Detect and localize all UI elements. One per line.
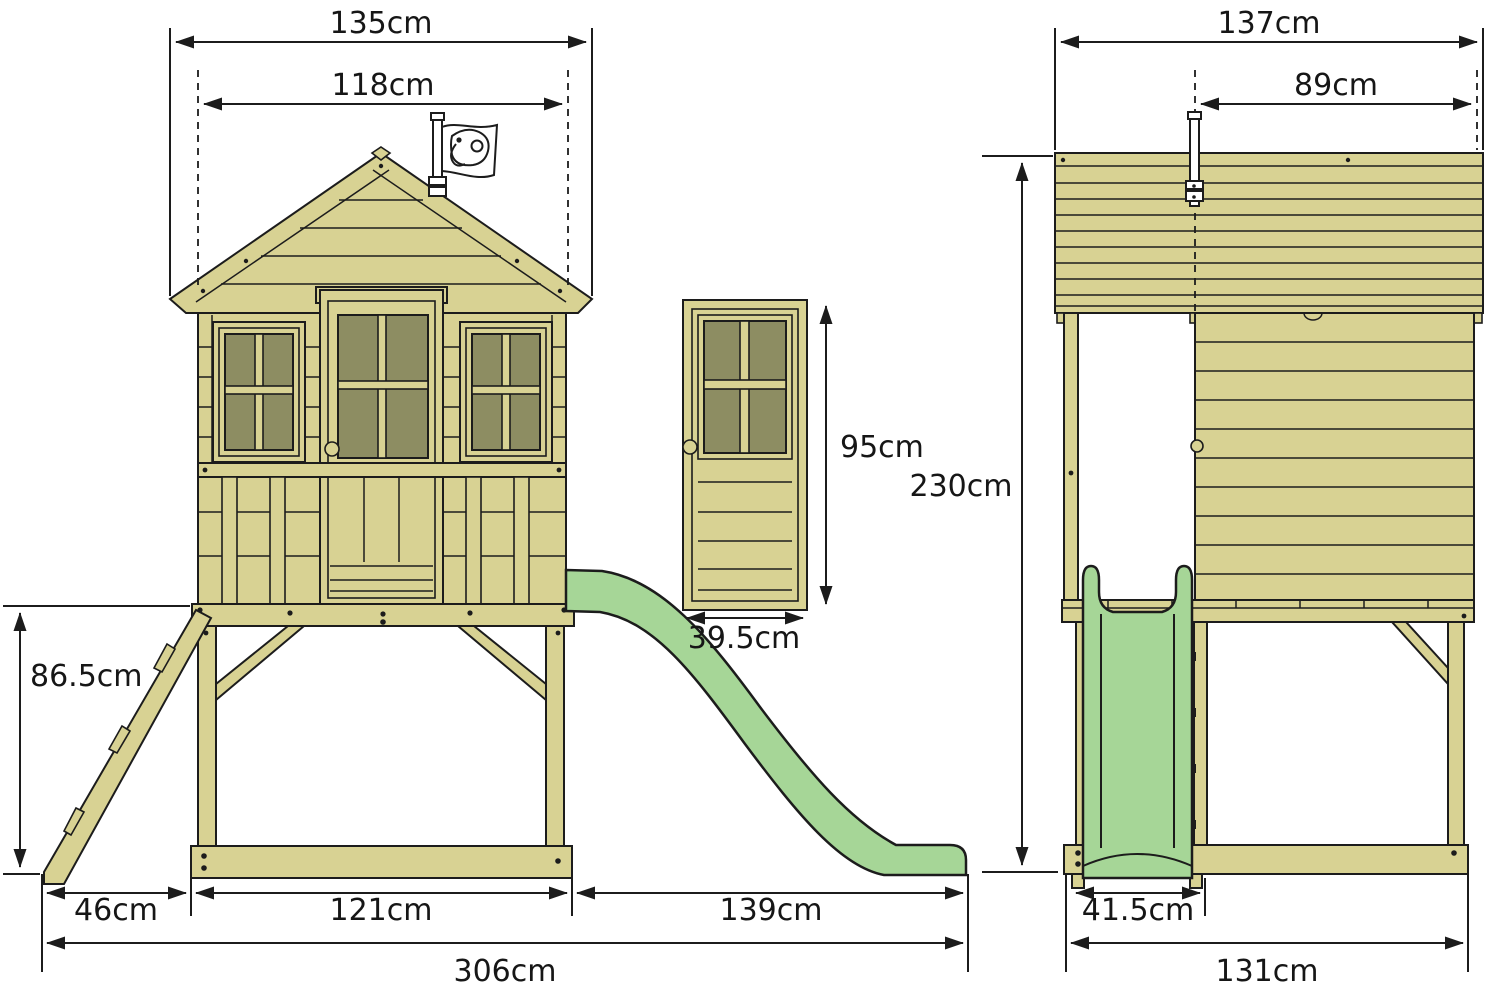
dim-side-total-height: 230cm [910,156,1058,872]
side-rear-post [1448,622,1464,845]
dim-front-platform-height: 86.5cm [3,606,190,874]
label-front-slide-run: 139cm [720,893,823,928]
side-brace [1392,622,1448,684]
dim-front-total-length: 306cm [47,943,963,989]
side-door-knob [1191,440,1203,452]
door-knob [325,442,339,456]
label-front-platform-height: 86.5cm [30,659,143,694]
front-rail [198,463,566,477]
door-detail-knob [683,440,697,454]
label-door-width: 39.5cm [688,621,801,656]
dim-door-height: 95cm [826,306,924,604]
front-view [44,113,966,884]
label-side-base-depth: 131cm [1216,954,1319,989]
front-legs [198,626,564,846]
label-side-body-depth: 89cm [1294,68,1378,103]
front-right-window [460,322,552,462]
side-slide [1083,566,1192,878]
front-base-beam [191,846,572,878]
label-front-total-length: 306cm [454,954,557,989]
label-front-body-width: 118cm [332,68,435,103]
side-view [1055,153,1483,888]
front-slide [566,570,966,875]
side-roof [1055,153,1483,323]
front-platform [192,604,574,626]
dim-side-bottom-row: 41.5cm 131cm [1066,874,1468,989]
label-side-slide-width: 41.5cm [1082,893,1195,928]
front-door [316,287,447,604]
front-flag [429,113,497,196]
front-left-brace [216,626,304,700]
label-side-roof-depth: 137cm [1218,6,1321,41]
front-ladder [44,610,211,884]
label-side-total-height: 230cm [910,469,1013,504]
front-left-leg [198,626,216,846]
label-front-roof-width: 135cm [330,6,433,41]
diagram-canvas: 135cm 118cm 86.5cm 46cm 121cm 1 [0,0,1500,997]
label-door-height: 95cm [840,430,924,465]
side-porch-post [1064,313,1078,600]
door-detail-view [683,300,807,610]
playhouse-dimension-diagram: 135cm 118cm 86.5cm 46cm 121cm 1 [0,0,1500,997]
front-right-leg [546,626,564,846]
side-wall [1191,313,1474,600]
label-front-base-length: 121cm [330,893,433,928]
dim-door-width: 39.5cm [687,618,803,656]
front-left-window [213,322,305,462]
front-right-brace [458,626,546,700]
dim-side-roof-depth: 137cm [1055,6,1483,150]
label-front-ladder-footprint: 46cm [74,893,158,928]
